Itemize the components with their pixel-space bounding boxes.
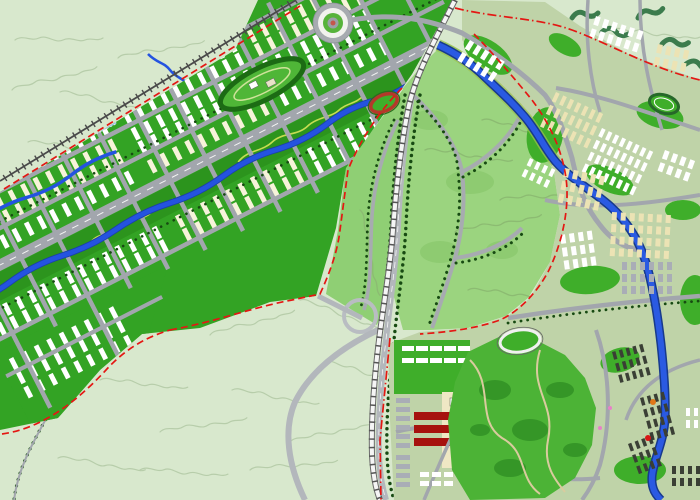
building (444, 358, 456, 363)
building (667, 274, 672, 282)
building (680, 478, 684, 486)
building (631, 262, 636, 270)
building (657, 214, 662, 222)
building (656, 226, 661, 234)
building (640, 286, 645, 294)
building (396, 482, 410, 487)
building (639, 213, 644, 221)
building (686, 420, 690, 428)
building (619, 236, 624, 244)
building (646, 238, 651, 246)
poi-marker-red (645, 435, 651, 441)
roundabout-monument-top (331, 21, 336, 26)
red-roof-halls (414, 412, 450, 446)
park-canopy (563, 443, 587, 457)
building (672, 478, 676, 486)
building (649, 262, 654, 270)
blossom (598, 426, 602, 430)
building (396, 434, 410, 439)
building (637, 237, 642, 245)
building (396, 443, 410, 448)
building (658, 274, 663, 282)
building (396, 464, 410, 469)
building (686, 408, 690, 416)
building (420, 472, 429, 477)
building (396, 407, 410, 412)
building (637, 249, 642, 257)
building (696, 478, 700, 486)
building (444, 481, 453, 486)
building (649, 274, 654, 282)
building (396, 398, 410, 403)
building (631, 274, 636, 282)
building (414, 412, 450, 420)
building (396, 455, 410, 460)
building (610, 236, 615, 244)
building (658, 262, 663, 270)
building (628, 249, 633, 257)
building (672, 466, 676, 474)
building (611, 224, 616, 232)
building (458, 346, 470, 351)
building (622, 274, 627, 282)
blossom (608, 406, 612, 410)
building (688, 466, 692, 474)
building (432, 481, 441, 486)
building (696, 466, 700, 474)
building (649, 286, 654, 294)
building (612, 212, 617, 220)
building (667, 262, 672, 270)
master-plan-map (0, 0, 700, 500)
poi-marker-orange (650, 399, 656, 405)
park-canopy (546, 382, 574, 398)
building (655, 250, 660, 258)
building (688, 478, 692, 486)
building (646, 250, 651, 258)
building (396, 416, 410, 421)
building (694, 408, 698, 416)
building (430, 346, 442, 351)
building (444, 472, 453, 477)
building (664, 239, 669, 247)
building (432, 472, 441, 477)
building (402, 346, 414, 351)
building (630, 213, 635, 221)
building (647, 226, 652, 234)
building (658, 286, 663, 294)
building (416, 346, 428, 351)
building (640, 274, 645, 282)
building (444, 346, 456, 351)
building (622, 262, 627, 270)
building (664, 251, 669, 259)
building (430, 358, 442, 363)
building (396, 473, 410, 478)
building (640, 262, 645, 270)
building (628, 237, 633, 245)
building (655, 238, 660, 246)
building (610, 248, 615, 256)
building (414, 438, 450, 446)
park-canopy (470, 424, 490, 436)
building (402, 358, 414, 363)
building (631, 286, 636, 294)
building (619, 248, 624, 256)
building (694, 420, 698, 428)
building (622, 286, 627, 294)
building (414, 425, 450, 433)
building (667, 286, 672, 294)
building (648, 214, 653, 222)
map-canvas (0, 0, 700, 500)
building (620, 224, 625, 232)
building (420, 481, 429, 486)
building (665, 227, 670, 235)
building (638, 225, 643, 233)
building (629, 225, 634, 233)
building (680, 466, 684, 474)
building (416, 358, 428, 363)
building (621, 212, 626, 220)
building (396, 425, 410, 430)
park-canopy (512, 419, 548, 441)
building (666, 215, 671, 223)
